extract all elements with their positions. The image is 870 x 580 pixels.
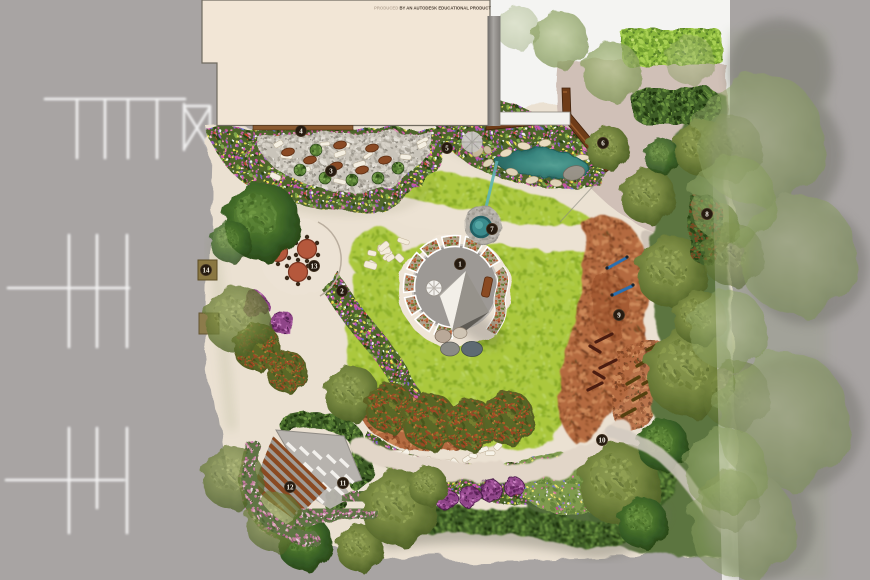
svg-text:12: 12 <box>287 483 295 491</box>
svg-text:6: 6 <box>601 139 605 147</box>
svg-text:14: 14 <box>203 266 211 274</box>
svg-text:11: 11 <box>340 479 347 487</box>
svg-text:3: 3 <box>329 167 333 175</box>
svg-text:8: 8 <box>705 210 709 218</box>
svg-text:2: 2 <box>340 287 344 295</box>
svg-text:1: 1 <box>458 260 462 268</box>
svg-text:PRODUCED BY AN AUTODESK EDUCAT: PRODUCED BY AN AUTODESK EDUCATIONAL PROD… <box>374 6 491 11</box>
svg-text:9: 9 <box>617 311 621 319</box>
svg-text:13: 13 <box>311 262 319 270</box>
svg-text:4: 4 <box>299 127 303 135</box>
svg-text:5: 5 <box>445 144 449 152</box>
svg-text:10: 10 <box>599 436 607 444</box>
svg-text:7: 7 <box>490 225 494 233</box>
